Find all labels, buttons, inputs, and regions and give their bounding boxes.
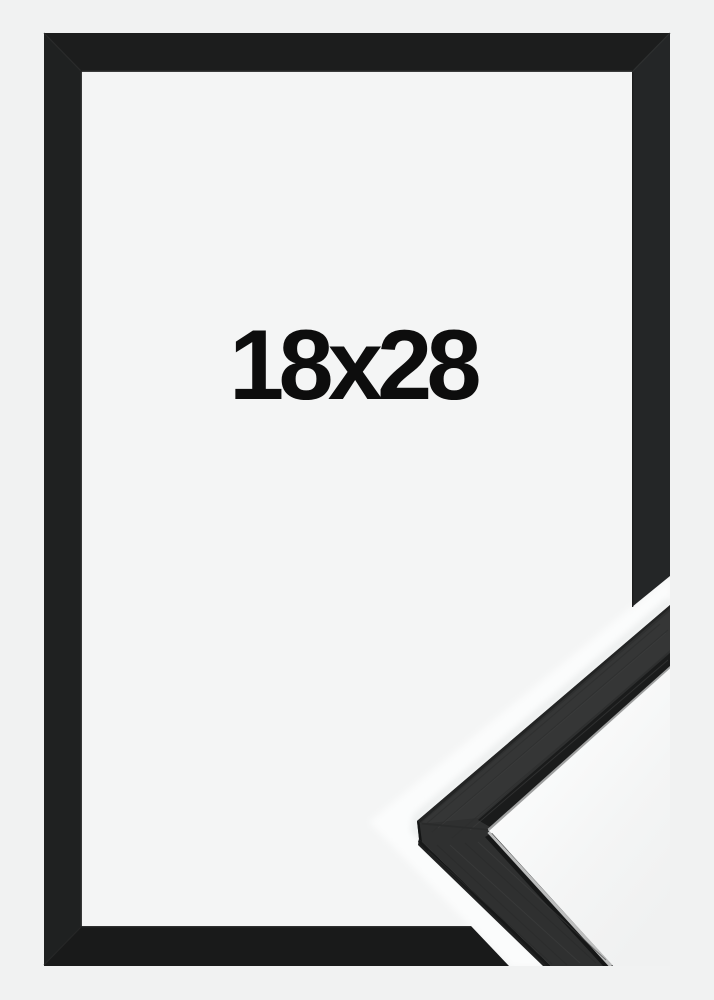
svg-text:18x28: 18x28	[229, 309, 479, 420]
